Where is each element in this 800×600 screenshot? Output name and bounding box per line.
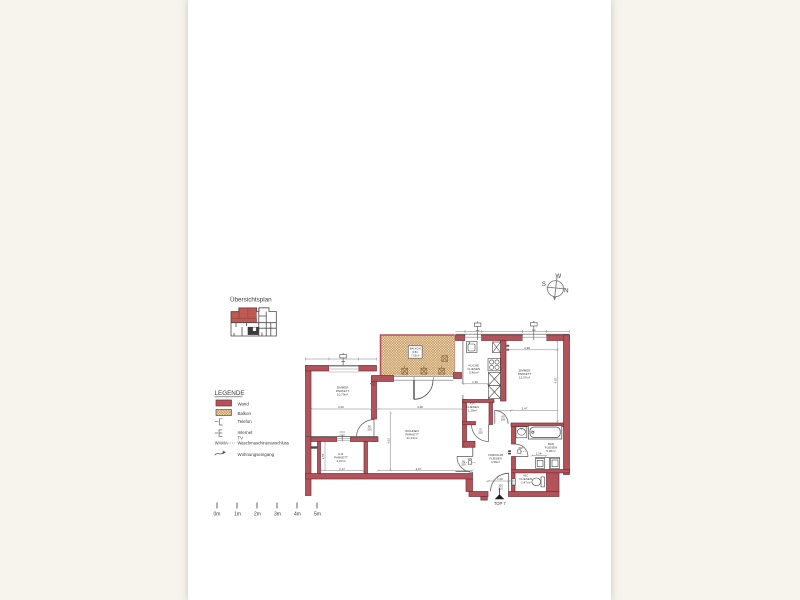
svg-text:WAMA: WAMA bbox=[215, 440, 228, 445]
svg-text:200: 200 bbox=[501, 418, 506, 422]
svg-text:2,98: 2,98 bbox=[524, 346, 530, 350]
svg-text:1,29m²: 1,29m² bbox=[468, 408, 477, 412]
svg-text:Balkon: Balkon bbox=[238, 411, 252, 416]
svg-text:S: S bbox=[542, 281, 546, 288]
svg-text:1,55: 1,55 bbox=[321, 453, 325, 459]
svg-text:4,28: 4,28 bbox=[417, 405, 423, 409]
svg-text:5m: 5m bbox=[314, 512, 321, 518]
svg-text:4,67: 4,67 bbox=[416, 467, 422, 471]
svg-text:200: 200 bbox=[367, 428, 372, 432]
svg-text:3,47: 3,47 bbox=[522, 406, 528, 410]
svg-text:N: N bbox=[564, 287, 568, 294]
svg-text:3,47m²: 3,47m² bbox=[336, 459, 345, 463]
svg-text:5,46m²: 5,46m² bbox=[469, 370, 478, 374]
svg-text:2m: 2m bbox=[254, 512, 261, 518]
svg-text:2,17: 2,17 bbox=[339, 467, 345, 471]
svg-text:7,05m²: 7,05m² bbox=[411, 353, 419, 357]
svg-text:1m: 1m bbox=[234, 512, 241, 518]
svg-text:W: W bbox=[555, 273, 561, 280]
svg-text:Telefon: Telefon bbox=[238, 419, 253, 424]
svg-text:WM: WM bbox=[518, 446, 523, 450]
svg-text:4m: 4m bbox=[294, 512, 301, 518]
svg-text:Wohnungseingang: Wohnungseingang bbox=[238, 452, 275, 457]
svg-text:21,43m²: 21,43m² bbox=[406, 436, 417, 440]
svg-text:LEGENDE: LEGENDE bbox=[215, 390, 245, 397]
svg-text:200: 200 bbox=[461, 463, 466, 467]
svg-text:200: 200 bbox=[478, 431, 483, 435]
svg-text:210: 210 bbox=[498, 487, 503, 491]
svg-text:Internet: Internet bbox=[238, 430, 254, 435]
svg-text:Wand: Wand bbox=[238, 401, 250, 406]
svg-text:1,47m²: 1,47m² bbox=[521, 480, 530, 484]
svg-text:1,14: 1,14 bbox=[536, 452, 542, 456]
svg-text:WM: WM bbox=[468, 457, 473, 461]
svg-text:4,07: 4,07 bbox=[554, 377, 558, 383]
svg-text:12,97m²: 12,97m² bbox=[519, 375, 530, 379]
svg-text:3,02: 3,02 bbox=[338, 405, 344, 409]
svg-text:4,62: 4,62 bbox=[387, 438, 391, 444]
svg-text:TOP 7: TOP 7 bbox=[494, 501, 507, 506]
svg-text:Waschmaschinenanschluss: Waschmaschinenanschluss bbox=[238, 440, 290, 445]
svg-text:1,36: 1,36 bbox=[472, 380, 478, 384]
svg-text:3m: 3m bbox=[274, 512, 281, 518]
svg-text:10,70m²: 10,70m² bbox=[337, 393, 348, 397]
svg-text:Übersichtsplan: Übersichtsplan bbox=[230, 295, 272, 303]
svg-text:0m: 0m bbox=[214, 512, 221, 518]
svg-text:5,06m²: 5,06m² bbox=[546, 449, 555, 453]
svg-text:(FB.): (FB.) bbox=[412, 350, 418, 354]
svg-text:1,00: 1,00 bbox=[497, 477, 503, 481]
svg-text:4,96m²: 4,96m² bbox=[491, 460, 500, 464]
